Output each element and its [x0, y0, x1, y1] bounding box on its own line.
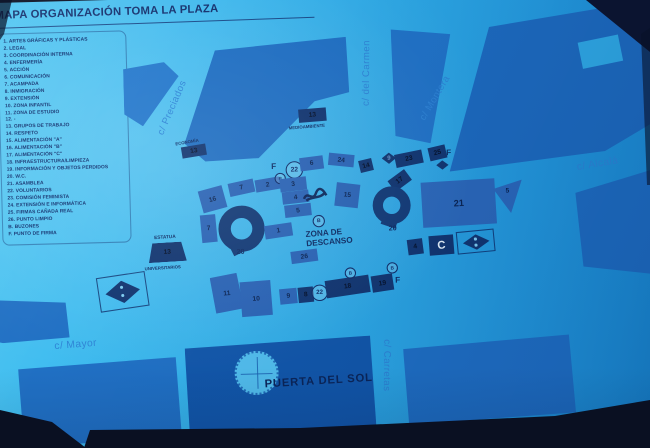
stand-26: 26: [290, 248, 318, 264]
small-diamond-stand: [436, 160, 449, 170]
stand-19: 19: [371, 273, 395, 292]
stand-5-triangle: [493, 178, 523, 214]
estatua-label: ESTATUA: [154, 234, 176, 240]
zona-descanso-label: ZONA DE DESCANSO: [305, 227, 353, 248]
stand-9: 9: [279, 288, 298, 305]
stand-11: 11: [209, 273, 244, 314]
stand-15: 15: [334, 182, 360, 208]
stand-10: 10: [240, 280, 273, 317]
wc-left-label: 20: [236, 249, 244, 256]
street-label-carretas: c/ Carretas: [381, 339, 393, 391]
stand-16: 16: [198, 185, 228, 213]
legend-list: 1. ARTES GRÁFICAS Y PLÁSTICAS2. LEGAL3. …: [0, 31, 130, 239]
metro-diamond-icon: [462, 233, 490, 251]
cercanias-c-sign: C: [428, 234, 454, 255]
stand-14: 14: [358, 158, 374, 173]
stand-5: 5: [284, 203, 312, 218]
stand-21-asamblea: 21: [421, 178, 497, 228]
stand-7-left: 7: [200, 214, 218, 243]
firma-point-label-top: F: [271, 162, 276, 171]
stand-4-east: 4: [407, 238, 424, 255]
handwritten-scribble: [301, 186, 329, 205]
street-label-mayor: c/ Mayor: [54, 338, 97, 353]
wc-right-label: 20: [389, 225, 397, 232]
stand-6: 6: [299, 155, 324, 171]
photo-of-printed-map: MAPA ORGANIZACIÓN TOMA LA PLAZA 1. ARTES…: [0, 0, 650, 448]
firma-point-label-right: F: [446, 148, 451, 157]
street-label-alcala: c/ Alcalá: [576, 155, 619, 173]
stand-24: 24: [328, 153, 355, 168]
page-title: MAPA ORGANIZACIÓN TOMA LA PLAZA: [0, 3, 219, 22]
stand-1: 1: [264, 222, 293, 239]
street-label-carmen: c/ del Carmen: [361, 29, 373, 106]
stand-13-estatua: 13: [148, 241, 187, 263]
stand-13-medioambiente: 13: [298, 107, 327, 122]
stand-7-top: 7: [228, 178, 256, 197]
map-paper: MAPA ORGANIZACIÓN TOMA LA PLAZA 1. ARTES…: [0, 0, 650, 448]
circled-b-19: B: [387, 262, 399, 274]
stand-25: 25: [427, 144, 447, 161]
legend-panel: 1. ARTES GRÁFICAS Y PLÁSTICAS2. LEGAL3. …: [0, 30, 132, 245]
metro-sign-east: [456, 229, 496, 255]
firma-point-label-south: F: [395, 275, 400, 284]
metro-diamond-icon: [104, 278, 142, 305]
circled-b-zona: B: [312, 215, 325, 228]
stand-5-triangle-label: 5: [506, 187, 510, 194]
metro-sign-west: [96, 271, 150, 313]
stand-23: 23: [394, 149, 424, 168]
universitarios-label: UNIVERSITARIOS: [145, 264, 181, 271]
medioambiente-label: MEDIOAMBIENTE: [288, 123, 325, 131]
